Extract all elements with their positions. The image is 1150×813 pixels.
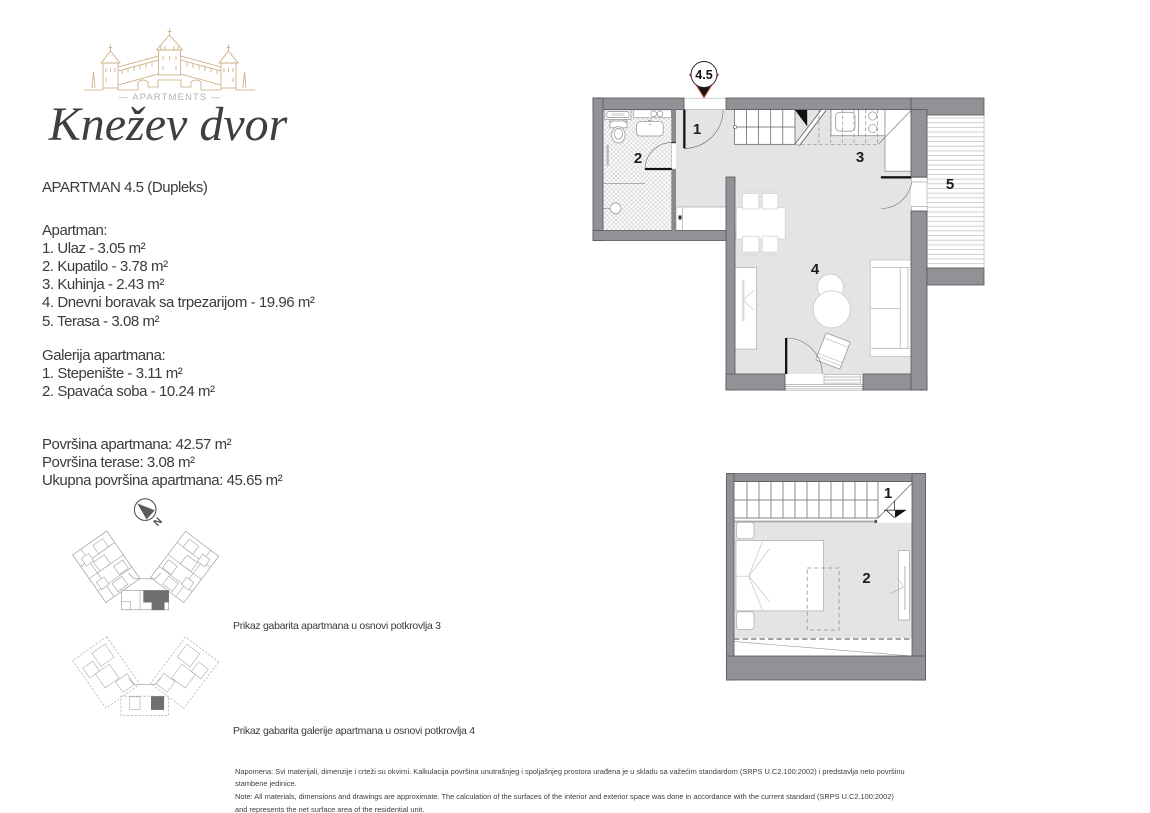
svg-text:1: 1 [884, 485, 892, 502]
svg-text:2: 2 [634, 150, 642, 167]
svg-text:4.5: 4.5 [695, 68, 712, 82]
svg-text:1: 1 [693, 121, 701, 138]
svg-text:2: 2 [862, 570, 870, 587]
svg-text:5: 5 [946, 176, 954, 193]
svg-text:3: 3 [856, 149, 864, 166]
svg-text:4: 4 [811, 261, 820, 278]
